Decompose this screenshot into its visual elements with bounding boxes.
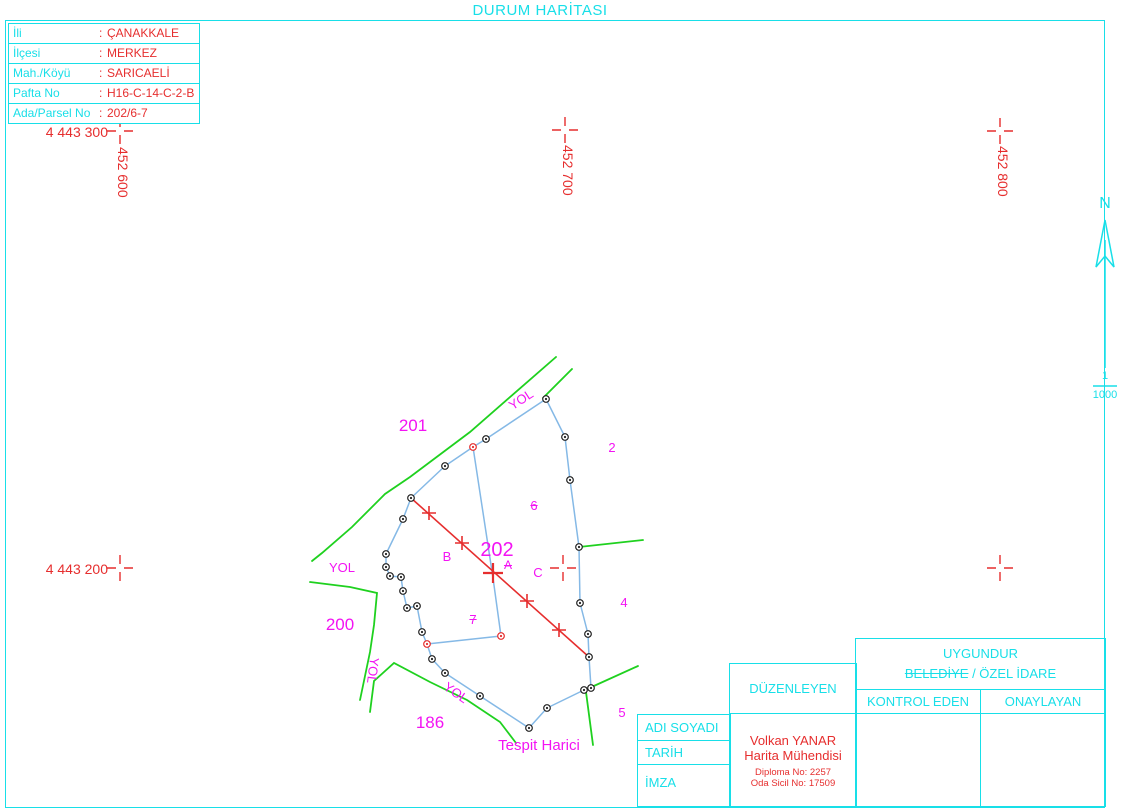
- easting-label-mid: 452 700: [560, 145, 576, 196]
- parcel-label-201: 201: [393, 416, 433, 436]
- engineer-block: Volkan YANAR Harita Mühendisi Diploma No…: [730, 714, 856, 789]
- scale-denominator: 1000: [1090, 389, 1120, 401]
- info-row-mah-koyu: Mah./Köyü : SARICAELİ: [9, 64, 199, 84]
- info-label: Mah./Köyü: [13, 64, 70, 83]
- approval-header: UYGUNDUR BELEDİYE / ÖZEL İDARE: [856, 639, 1105, 690]
- info-label: Pafta No: [13, 84, 60, 103]
- road-label-yol-left: YOL: [325, 560, 359, 575]
- kontrol-eden-cell: KONTROL EDEN: [856, 690, 981, 713]
- info-row-pafta-no: Pafta No : H16-C-14-C-2-B: [9, 84, 199, 104]
- engineer-name: Volkan YANAR: [730, 733, 856, 748]
- authority-ozel-idare: / ÖZEL İDARE: [972, 666, 1056, 681]
- info-label: İlçesi: [13, 44, 40, 63]
- onaylayan-cell: ONAYLAYAN: [981, 690, 1105, 713]
- parcel-label-5: 5: [612, 705, 632, 720]
- info-value: SARICAELİ: [107, 64, 170, 83]
- duzenleyen-table: DÜZENLEYEN Volkan YANAR Harita Mühendisi…: [729, 663, 857, 807]
- parcel-label-2: 2: [602, 440, 622, 455]
- map-note-tespit-harici: Tespit Harici: [489, 737, 589, 754]
- engineer-title: Harita Mühendisi: [730, 748, 856, 763]
- point-label-a-cancelled: A: [498, 558, 518, 572]
- scale-numerator: 1: [1090, 370, 1120, 382]
- approval-subheader-row: KONTROL EDEN ONAYLAYAN: [856, 690, 1105, 714]
- northing-label-top: 4 443 300: [36, 124, 108, 140]
- field-adi-soyadi: ADI SOYADI: [638, 715, 730, 741]
- easting-label-right: 452 800: [995, 146, 1011, 197]
- info-value: 202/6-7: [107, 104, 148, 123]
- info-label: İli: [13, 24, 22, 43]
- point-label-c: C: [528, 565, 548, 580]
- uygundur-text: UYGUNDUR: [856, 639, 1105, 661]
- page-title: DURUM HARİTASI: [420, 2, 660, 19]
- north-label: N: [1093, 195, 1117, 213]
- kontrol-eden-signature-cell: [856, 714, 981, 806]
- field-tarih: TARİH: [638, 741, 730, 765]
- info-row-ilcesi: İlçesi : MERKEZ: [9, 44, 199, 64]
- authority-struck-belediye: BELEDİYE: [905, 666, 969, 681]
- info-label: Ada/Parsel No: [13, 104, 90, 123]
- info-value: MERKEZ: [107, 44, 157, 63]
- parcel-label-6-cancelled: 6: [524, 498, 544, 513]
- engineer-diploma-no: Diploma No: 2257: [730, 767, 856, 778]
- authority-text: BELEDİYE / ÖZEL İDARE: [856, 661, 1105, 681]
- onaylayan-signature-cell: [981, 714, 1105, 806]
- approval-empty-row: [856, 714, 1105, 806]
- info-value: H16-C-14-C-2-B: [107, 84, 194, 103]
- field-imza: İMZA: [638, 765, 730, 806]
- signature-fields-table: ADI SOYADI TARİH İMZA: [637, 714, 731, 807]
- info-row-ili: İli : ÇANAKKALE: [9, 24, 199, 44]
- point-label-b: B: [437, 549, 457, 564]
- parcel-label-186: 186: [410, 713, 450, 733]
- engineer-registry-no: Oda Sicil No: 17509: [730, 778, 856, 789]
- info-value: ÇANAKKALE: [107, 24, 179, 43]
- northing-label-mid: 4 443 200: [36, 561, 108, 577]
- easting-label-left: 452 600: [115, 147, 131, 198]
- parcel-label-200: 200: [320, 615, 360, 635]
- info-row-ada-parsel: Ada/Parsel No : 202/6-7: [9, 104, 199, 123]
- parcel-info-table: İli : ÇANAKKALE İlçesi : MERKEZ Mah./Köy…: [8, 23, 200, 124]
- duzenleyen-header: DÜZENLEYEN: [730, 664, 856, 714]
- parcel-label-4: 4: [614, 595, 634, 610]
- approval-table: UYGUNDUR BELEDİYE / ÖZEL İDARE KONTROL E…: [855, 638, 1106, 807]
- parcel-label-7-cancelled: 7: [463, 612, 483, 627]
